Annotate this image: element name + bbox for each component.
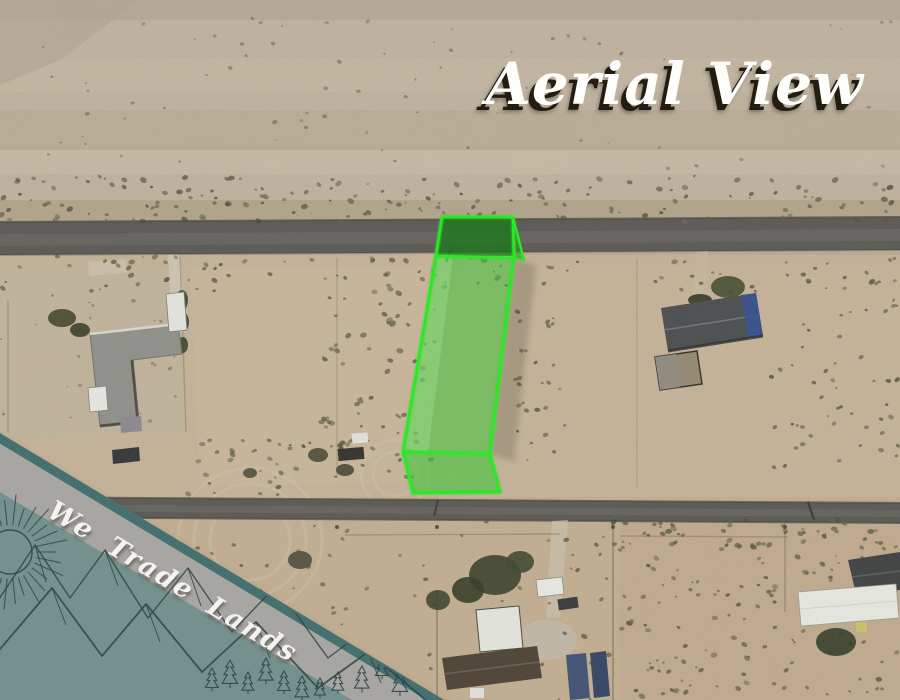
page-title: Aerial View xyxy=(486,50,864,118)
aerial-view-page: Aerial View We Trade Lands xyxy=(0,0,900,700)
banner-corner-art xyxy=(0,420,470,700)
